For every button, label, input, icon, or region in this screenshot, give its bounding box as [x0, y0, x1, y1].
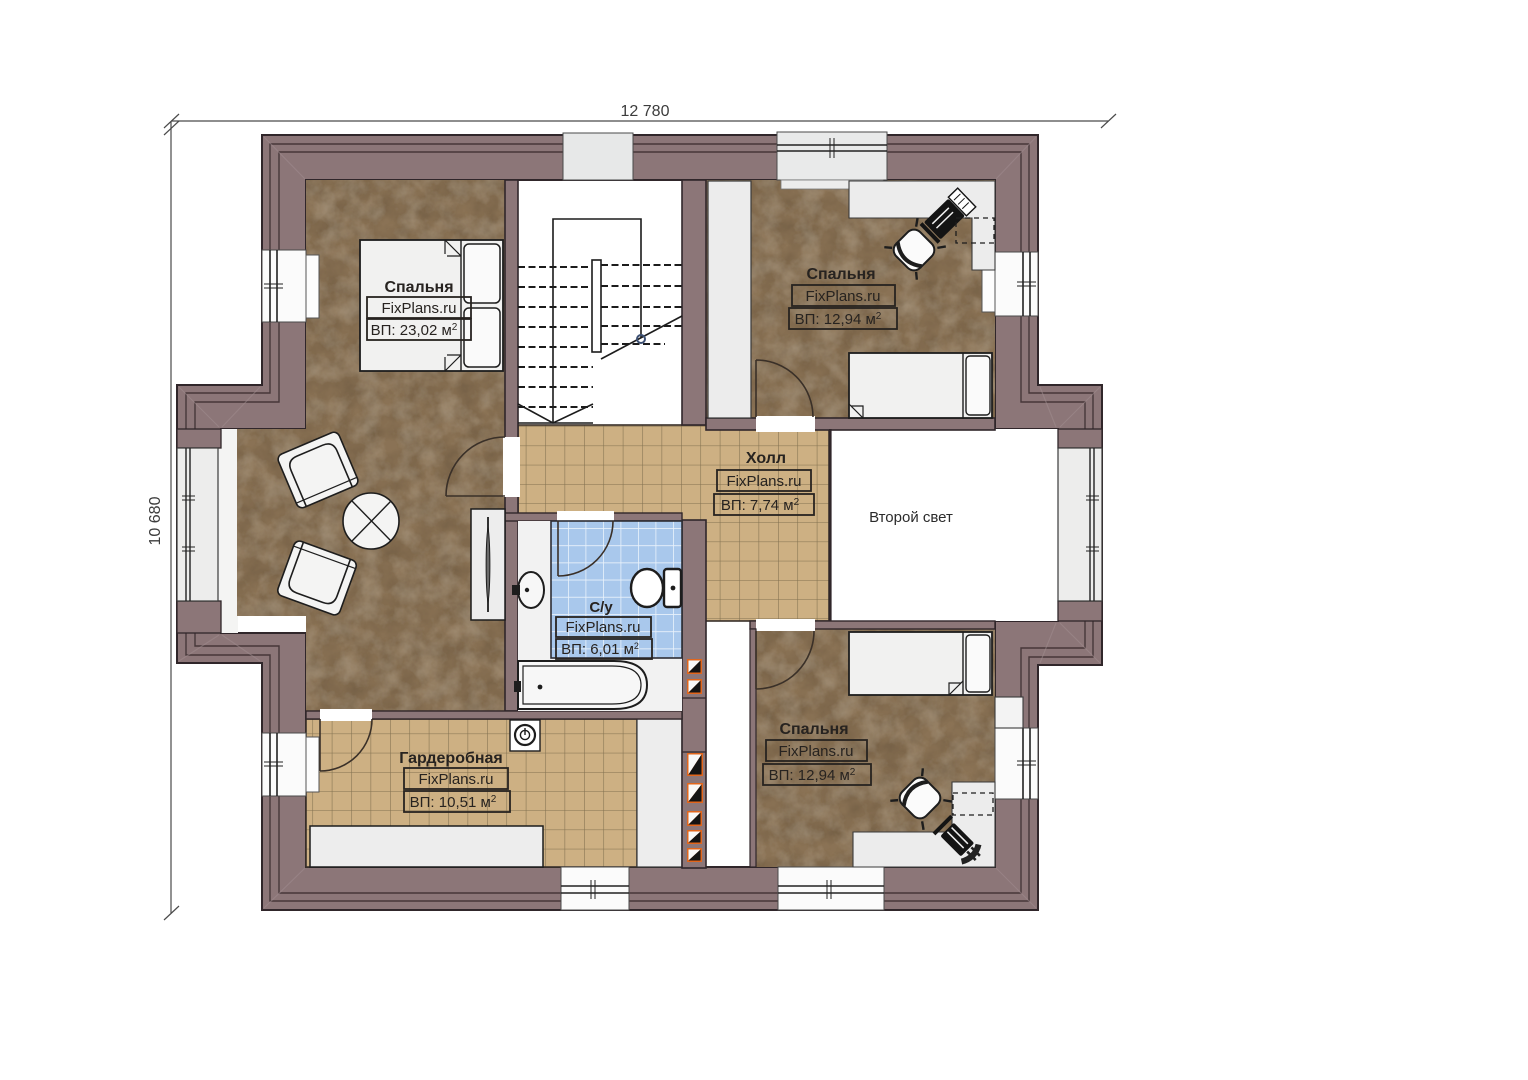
svg-text:Холл: Холл [746, 450, 786, 467]
svg-text:Спальня: Спальня [806, 266, 875, 283]
svg-text:FixPlans.ru: FixPlans.ru [726, 473, 801, 490]
svg-text:Спальня: Спальня [384, 279, 453, 296]
svg-text:FixPlans.ru: FixPlans.ru [778, 743, 853, 760]
svg-text:ВП: 10,51 м2: ВП: 10,51 м2 [410, 794, 497, 811]
svg-text:ВП: 6,01 м2: ВП: 6,01 м2 [561, 641, 639, 658]
svg-text:10 680: 10 680 [147, 496, 164, 545]
svg-text:Второй свет: Второй свет [869, 509, 953, 526]
svg-text:ВП: 12,94 м2: ВП: 12,94 м2 [795, 311, 882, 328]
svg-text:Гардеробная: Гардеробная [399, 750, 503, 767]
svg-text:FixPlans.ru: FixPlans.ru [418, 771, 493, 788]
svg-text:12 780: 12 780 [621, 103, 670, 120]
svg-text:ВП: 7,74 м2: ВП: 7,74 м2 [721, 497, 800, 514]
svg-text:FixPlans.ru: FixPlans.ru [805, 288, 880, 305]
svg-text:FixPlans.ru: FixPlans.ru [565, 619, 640, 636]
svg-text:FixPlans.ru: FixPlans.ru [381, 300, 456, 317]
svg-text:ВП: 12,94 м2: ВП: 12,94 м2 [769, 767, 856, 784]
svg-text:ВП: 23,02 м2: ВП: 23,02 м2 [371, 322, 458, 339]
svg-text:С/у: С/у [589, 599, 613, 616]
svg-text:Спальня: Спальня [779, 721, 848, 738]
